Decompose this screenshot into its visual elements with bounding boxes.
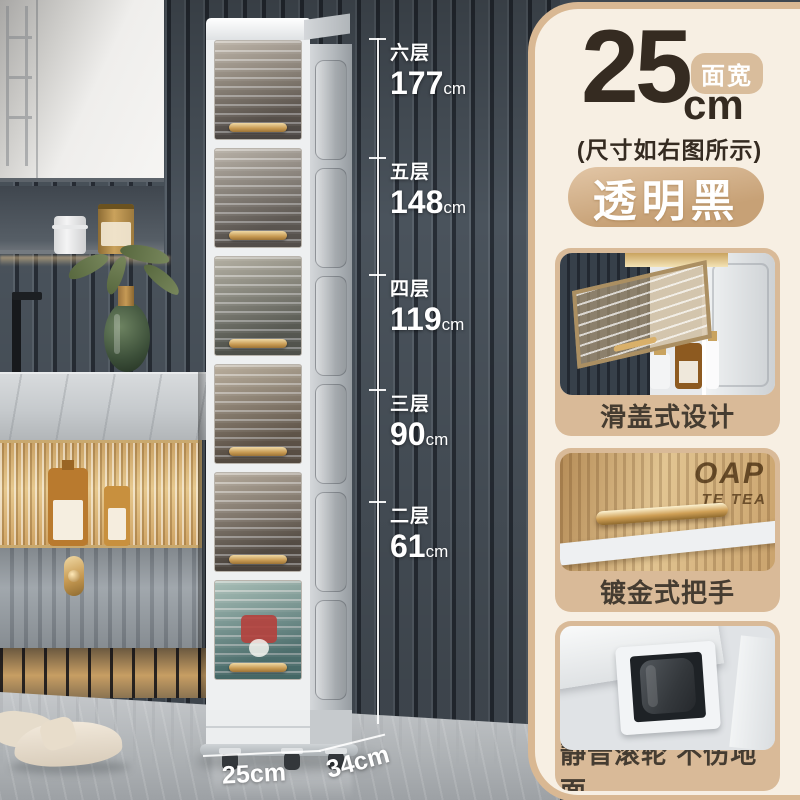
cabinet-door-tier1 [214, 580, 302, 680]
tier-name: 五层 [390, 163, 466, 183]
soap-overlay-text: OAP [694, 457, 765, 491]
ruler-tick [369, 157, 386, 159]
dimension-label-tier6: 六层 177cm [390, 44, 466, 101]
amber-bottle [48, 468, 88, 546]
side-panel-inset [315, 600, 347, 700]
white-jar [54, 216, 86, 254]
gold-handle [229, 231, 287, 240]
feature-card-gold-handle: OAP TE TEA 镀金式把手 [555, 448, 780, 612]
dimension-label-tier2: 二层 61cm [390, 507, 448, 564]
feature-photo-slide-cover [560, 253, 775, 395]
gold-handle [229, 123, 287, 132]
gold-handle [229, 447, 287, 456]
black-faucet [12, 292, 21, 374]
storage-cabinet [206, 18, 352, 760]
cabinet-door-tier6 [214, 40, 302, 140]
feature1-amber-bottle [675, 343, 702, 389]
feature3-wheel [639, 657, 697, 715]
ruler-tick [369, 38, 386, 40]
toe-kick-light [0, 648, 212, 698]
tier-height: 61 [390, 528, 426, 564]
feature-caption: 镀金式把手 [560, 571, 775, 612]
side-panel-inset [315, 276, 347, 376]
cabinet-door-tier4 [214, 256, 302, 356]
tier-unit: cm [443, 198, 466, 217]
mirror-seam [36, 0, 38, 178]
gold-handle [229, 339, 287, 348]
tier-name: 二层 [390, 507, 448, 527]
feature-photo-silent-wheel [560, 626, 775, 750]
width-header: 25 面宽 cm [535, 9, 800, 139]
amber-bottle-small [104, 486, 130, 546]
feature-photo-gold-handle: OAP TE TEA [560, 453, 775, 571]
gold-oval-handle [64, 556, 84, 596]
feature-card-slide-cover: 滑盖式设计 [555, 248, 780, 436]
height-ruler-line [377, 38, 379, 724]
ruler-tick [369, 389, 386, 391]
tier-unit: cm [426, 542, 449, 561]
dimension-label-tier3: 三层 90cm [390, 395, 448, 452]
feature-caption: 滑盖式设计 [560, 395, 775, 436]
black-faucet-spout [12, 292, 42, 300]
towel-ladder-reflection [4, 6, 30, 166]
tier-unit: cm [426, 430, 449, 449]
gold-handle [229, 555, 287, 564]
cabinet-door-tier3 [214, 364, 302, 464]
cabinet-door-tier5 [214, 148, 302, 248]
tier-height: 119 [390, 301, 442, 337]
feature-caption: 静音滚轮 不伤地面 [560, 750, 775, 791]
width-unit: cm [683, 81, 744, 129]
info-panel: 25 面宽 cm (尺寸如右图所示) 透明黑 滑盖式设计 OAP T [528, 2, 800, 800]
green-glass-vase [104, 302, 150, 372]
tier-height: 90 [390, 416, 426, 452]
gold-handle [229, 663, 287, 672]
tier-name: 三层 [390, 395, 448, 415]
feature1-white-bottle [650, 353, 670, 389]
side-panel-inset [315, 60, 347, 160]
cabinet-door-tier2 [214, 472, 302, 572]
product-image: 六层 177cm 五层 148cm 四层 119cm 三层 90cm 二层 61… [0, 0, 800, 800]
marble-countertop [0, 372, 212, 440]
feature1-slim-bottle [706, 339, 719, 389]
dimension-label-tier4: 四层 119cm [390, 280, 464, 337]
cabinet-base [206, 710, 352, 748]
tier-unit: cm [442, 315, 465, 334]
side-panel-inset [315, 168, 347, 268]
tier-unit: cm [443, 79, 466, 98]
side-panel-inset [315, 384, 347, 484]
feature3-wheel-bracket [615, 641, 721, 736]
tier-name: 六层 [390, 44, 466, 64]
feature-card-silent-wheel: 静音滚轮 不伤地面 [555, 621, 780, 791]
width-value: 25 [581, 25, 689, 110]
vanity-doors [0, 548, 202, 648]
package-logo [241, 615, 277, 643]
tier-height: 177 [390, 65, 443, 101]
tier-name: 四层 [390, 280, 464, 300]
feature1-shelf-glow [625, 253, 728, 267]
backlit-glass-cabinet [0, 440, 202, 548]
ruler-tick [369, 501, 386, 503]
ruler-tick [369, 274, 386, 276]
caster-wheel [284, 752, 300, 770]
cabinet-side-panel [310, 44, 352, 710]
dimension-label-tier5: 五层 148cm [390, 163, 466, 220]
floor-width-label: 25cm [221, 758, 286, 790]
size-note: (尺寸如右图所示) [535, 131, 800, 165]
mirror [0, 0, 164, 182]
color-name-banner: 透明黑 [568, 167, 764, 227]
side-panel-inset [315, 492, 347, 592]
tier-height: 148 [390, 184, 443, 220]
cabinet-top [206, 18, 310, 40]
feature3-wheel-opening [630, 652, 706, 723]
